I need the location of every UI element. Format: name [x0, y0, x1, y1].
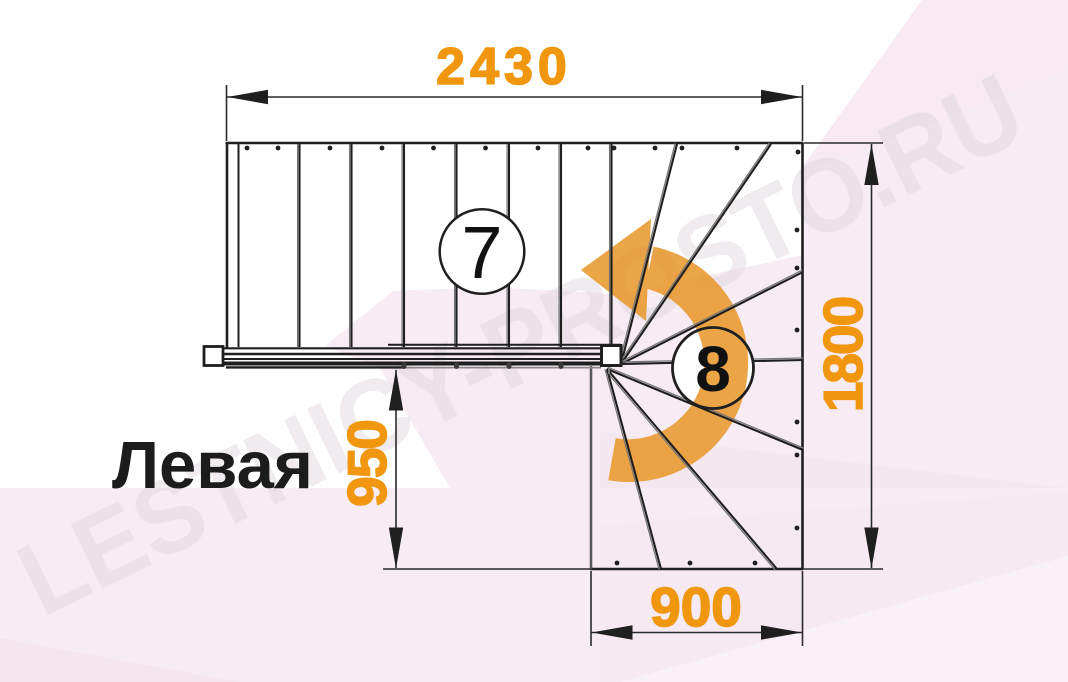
svg-text:2430: 2430 [436, 38, 572, 96]
svg-text:1800: 1800 [812, 297, 874, 412]
svg-text:7: 7 [461, 211, 502, 294]
svg-text:900: 900 [650, 576, 742, 638]
svg-text:Левая: Левая [112, 428, 313, 503]
svg-text:8: 8 [695, 333, 731, 405]
svg-text:950: 950 [336, 421, 398, 507]
